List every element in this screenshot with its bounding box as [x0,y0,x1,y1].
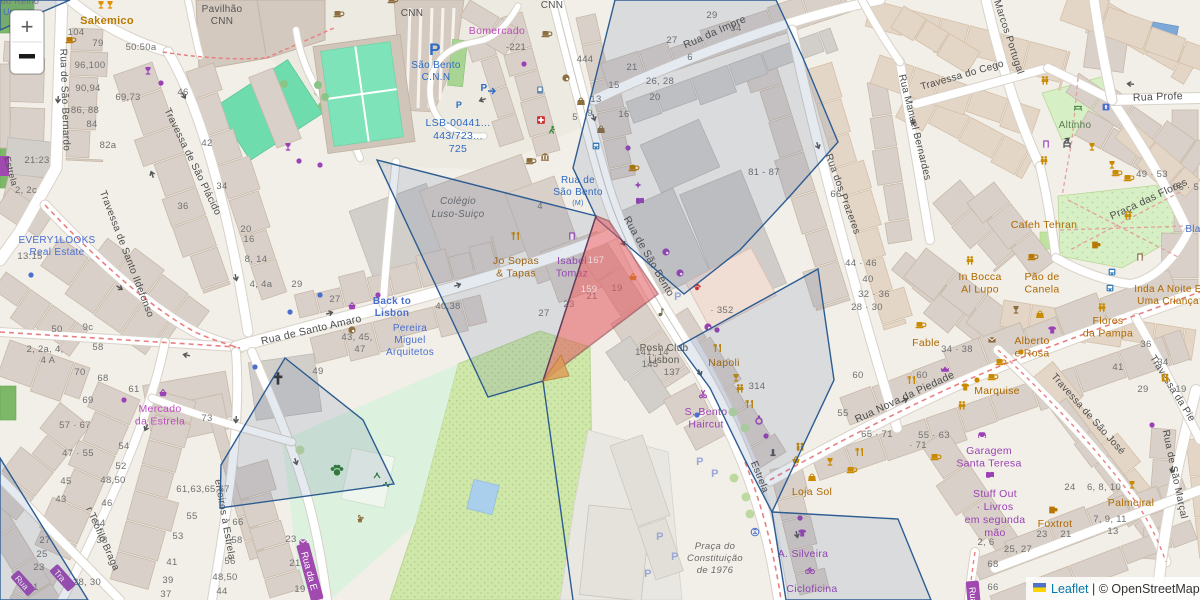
svg-text:Miguel: Miguel [394,335,425,346]
svg-text:725: 725 [449,143,467,155]
svg-text:56: 56 [224,556,235,567]
svg-text:66: 66 [987,582,998,593]
svg-text:9c: 9c [83,322,94,333]
svg-text:Palmeiral: Palmeiral [1108,497,1154,509]
svg-text:96,100: 96,100 [75,60,106,71]
svg-text:13: 13 [1107,526,1118,537]
svg-text:34 · 38: 34 · 38 [941,344,973,355]
svg-text:47 · 55: 47 · 55 [62,448,94,459]
svg-text:104: 104 [68,27,85,38]
svg-text:32 · 36: 32 · 36 [858,289,890,300]
svg-text:P: P [671,551,679,563]
svg-text:Back to: Back to [373,296,411,307]
svg-text:Mercado: Mercado [139,403,182,415]
svg-text:P: P [481,83,488,94]
svg-text:de 1976: de 1976 [697,565,734,576]
svg-text:Haircut: Haircut [688,419,723,431]
svg-text:Altinho: Altinho [1059,120,1092,131]
svg-text:Arquitetos: Arquitetos [386,347,434,358]
svg-text:82a: 82a [100,140,117,151]
svg-text:· 71: · 71 [909,440,927,451]
svg-text:79: 79 [92,38,103,49]
svg-text:· Livros: · Livros [977,501,1014,513]
svg-text:58: 58 [231,535,242,546]
svg-text:56 · 5: 56 · 5 [1173,182,1199,193]
svg-text:São Bento: São Bento [411,60,461,71]
svg-text:P: P [711,468,719,480]
svg-text:4, 4a: 4, 4a [250,279,273,290]
svg-text:49: 49 [312,366,323,377]
svg-text:P: P [644,568,652,580]
svg-text:19: 19 [1175,384,1186,395]
svg-text:34: 34 [1157,357,1168,368]
svg-text:8, 14: 8, 14 [245,254,268,265]
svg-text:44 · 46: 44 · 46 [845,258,877,269]
svg-text:60: 60 [852,370,863,381]
svg-text:28 · 30: 28 · 30 [851,302,883,313]
svg-text:P: P [696,456,704,468]
svg-text:25, 27: 25, 27 [1004,544,1032,555]
svg-text:CNN: CNN [211,16,234,27]
svg-text:Constituição: Constituição [687,553,743,564]
svg-text:40: 40 [862,274,873,285]
svg-text:Rua: Rua [967,587,978,600]
svg-text:36: 36 [1140,339,1151,350]
svg-text:Marquise: Marquise [974,385,1020,397]
svg-text:Alberto: Alberto [1014,335,1049,347]
svg-text:90,94: 90,94 [75,83,100,94]
svg-text:2, 6: 2, 6 [977,537,994,548]
svg-text:52: 52 [115,461,126,472]
svg-text:Pereira: Pereira [393,323,427,334]
svg-text:CNN: CNN [401,8,424,19]
svg-text:68: 68 [97,373,108,384]
svg-text:48,50: 48,50 [212,572,237,583]
svg-text:Al Lupo: Al Lupo [961,284,999,296]
svg-text:21: 21 [289,558,300,569]
svg-text:44: 44 [216,586,227,597]
svg-text:da Estrela: da Estrela [135,416,185,428]
svg-text:73: 73 [201,413,212,424]
svg-text:P: P [656,531,664,543]
svg-text:29: 29 [291,279,302,290]
svg-text:Pão de: Pão de [1024,271,1059,283]
svg-text:23: 23 [1036,529,1047,540]
svg-text:Flores: Flores [1093,315,1124,327]
svg-text:Fable: Fable [912,337,940,349]
svg-text:55: 55 [186,511,197,522]
svg-text:P: P [429,40,441,59]
svg-text:Bla: Bla [1185,224,1200,235]
svg-text:Uma Criança: Uma Criança [1137,296,1199,307]
svg-text:41: 41 [166,557,177,568]
svg-text:84: 84 [86,119,97,130]
svg-text:53: 53 [172,531,183,542]
svg-text:Canela: Canela [1024,284,1059,296]
svg-text:54: 54 [118,441,129,452]
svg-text:69,73: 69,73 [115,92,140,103]
svg-text:43, 45,: 43, 45, [341,332,372,343]
svg-text:38: 38 [96,535,107,546]
svg-text:| © OpenStreetMap: | © OpenStreetMap [1092,582,1200,596]
svg-text:(M): (M) [572,200,583,207]
svg-text:Loja Sol: Loja Sol [792,486,832,498]
svg-text:58: 58 [92,342,103,353]
svg-text:43: 43 [55,494,66,505]
svg-text:21: 21 [1060,529,1071,540]
svg-text:65 · 71: 65 · 71 [861,429,893,440]
svg-text:57 · 67: 57 · 67 [59,420,91,431]
svg-text:+: + [21,14,34,39]
svg-text:Stuff Out: Stuff Out [973,488,1017,500]
svg-text:· 352: · 352 [710,305,733,316]
svg-text:444: 444 [577,54,594,65]
svg-text:69: 69 [82,395,93,406]
svg-text:159: 159 [581,284,598,295]
svg-text:Bomercado: Bomercado [469,25,525,37]
svg-text:41: 41 [1112,362,1123,373]
svg-text:2, 2a, 4,: 2, 2a, 4, [26,344,63,355]
svg-text:-221: -221 [506,42,526,53]
svg-text:68: 68 [987,559,998,570]
svg-text:443/723...: 443/723... [433,130,483,142]
svg-text:6, 8, 10: 6, 8, 10 [1087,482,1121,493]
svg-text:em segunda: em segunda [965,514,1026,526]
svg-text:46: 46 [177,87,188,98]
svg-text:61: 61 [128,384,139,395]
svg-text:23: 23 [285,534,296,545]
svg-text:66: 66 [830,189,841,200]
svg-text:37: 37 [160,589,171,600]
svg-text:49 · 53: 49 · 53 [1136,169,1168,180]
svg-text:5: 5 [572,112,578,123]
svg-text:C.N.N: C.N.N [422,72,451,83]
svg-text:24: 24 [1064,482,1075,493]
svg-text:7, 9, 11: 7, 9, 11 [1093,514,1126,525]
svg-text:36: 36 [177,201,188,212]
svg-text:145: 145 [642,359,659,370]
svg-text:29: 29 [1137,384,1148,395]
svg-text:Praça do: Praça do [695,541,735,552]
svg-text:Rua Profe: Rua Profe [1133,90,1183,104]
svg-text:48,50: 48,50 [100,475,125,486]
svg-text:Sakemico: Sakemico [80,15,134,27]
svg-text:Garagem: Garagem [966,445,1012,457]
svg-text:137: 137 [664,367,681,378]
svg-text:4 A: 4 A [41,355,56,366]
svg-text:39: 39 [162,575,173,586]
svg-text:70: 70 [74,367,85,378]
svg-text:Lisbon: Lisbon [375,308,410,319]
svg-text:86, 88: 86, 88 [71,105,99,116]
svg-text:50: 50 [51,324,62,335]
svg-text:2, 2c: 2, 2c [15,185,37,196]
svg-text:CNN: CNN [541,0,564,11]
svg-text:Cafeh Tehran: Cafeh Tehran [1011,219,1077,231]
svg-text:66: 66 [232,517,243,528]
svg-text:46: 46 [101,498,112,509]
svg-text:da Pampa: da Pampa [1083,328,1133,340]
svg-text:19: 19 [294,584,305,595]
svg-text:167: 167 [588,255,605,266]
svg-text:LSB-00441...: LSB-00441... [426,117,491,129]
svg-text:55: 55 [837,408,848,419]
svg-text:16: 16 [243,234,254,245]
svg-text:Santa Teresa: Santa Teresa [956,458,1021,470]
svg-text:13:15: 13:15 [17,251,42,262]
svg-text:P: P [674,291,682,303]
svg-text:42: 42 [201,138,212,149]
svg-text:141, 14: 141, 14 [635,347,669,358]
svg-text:45: 45 [60,476,71,487]
svg-text:Leaflet: Leaflet [1051,582,1089,596]
svg-text:27: 27 [329,294,340,305]
svg-text:44: 44 [94,518,105,529]
svg-text:34: 34 [216,181,227,192]
svg-text:21:23: 21:23 [24,155,49,166]
svg-text:Inda A Noite E: Inda A Noite E [1134,284,1200,295]
svg-text:In Bocca: In Bocca [958,271,1001,283]
svg-text:Pavilhão: Pavilhão [202,4,243,15]
svg-text:P: P [456,100,462,110]
svg-text:50:50a: 50:50a [126,42,157,53]
svg-text:47: 47 [354,344,365,355]
svg-text:EVERY1LOOKS: EVERY1LOOKS [18,235,95,246]
svg-text:60: 60 [916,370,927,381]
